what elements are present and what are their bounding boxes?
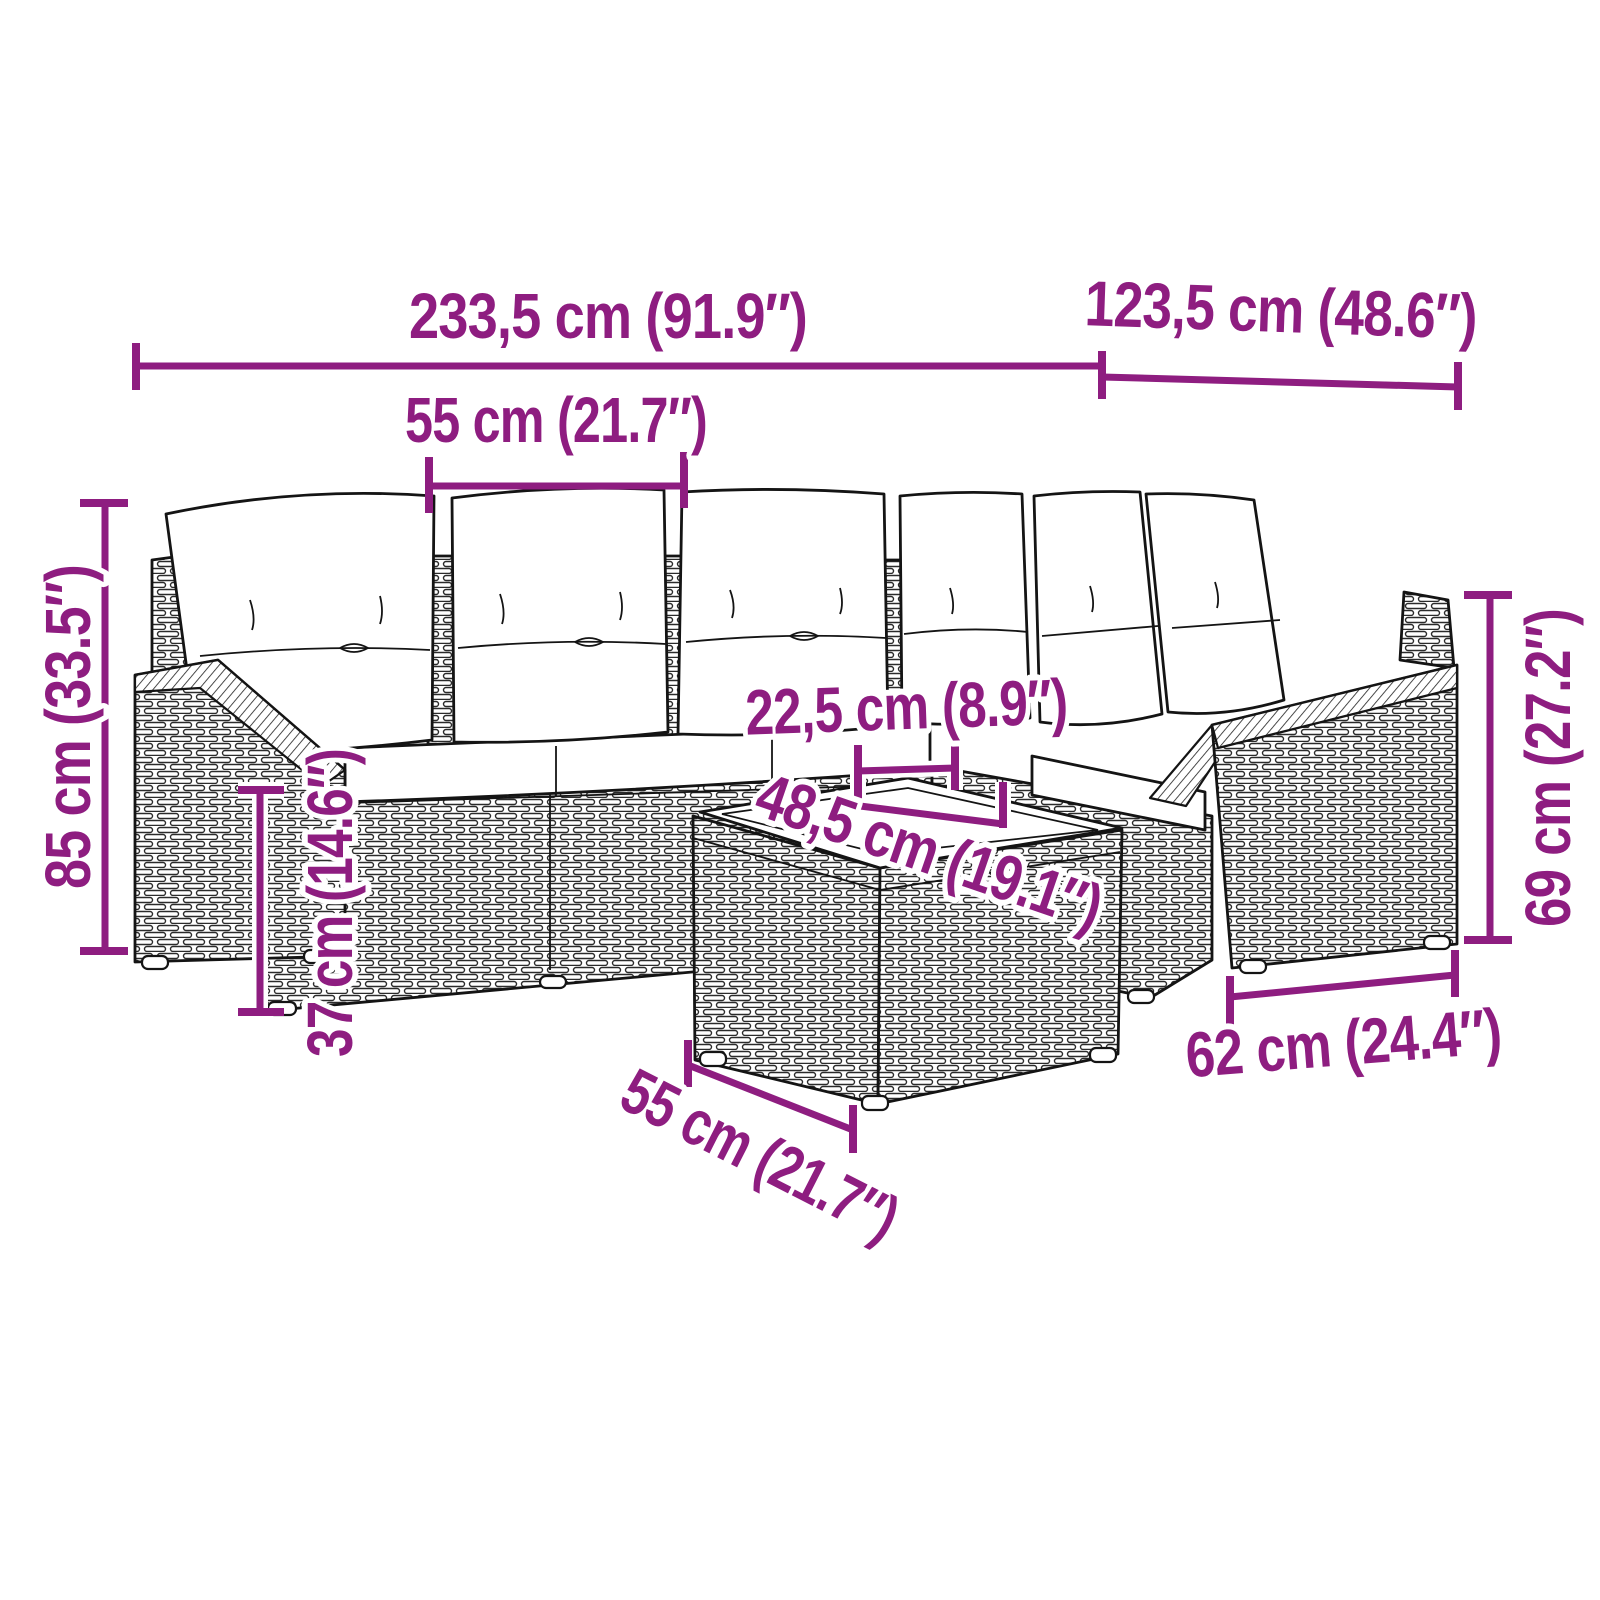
dimension-diagram: 233,5 cm (91.9″) 123,5 cm (48.6″) 55 cm … xyxy=(0,0,1600,1600)
table-foot xyxy=(862,1096,888,1110)
sofa-foot xyxy=(1424,936,1450,949)
dim-label-total-width: 233,5 cm (91.9″) xyxy=(409,280,807,352)
back-cushions-right xyxy=(1034,492,1284,725)
dim-label-table-gap: 22,5 cm (8.9″) xyxy=(744,665,1068,748)
diagram-canvas: 233,5 cm (91.9″) 123,5 cm (48.6″) 55 cm … xyxy=(0,0,1600,1600)
back-cushion xyxy=(452,488,668,742)
sofa-foot xyxy=(142,956,168,969)
dim-sofa-total-depth: 123,5 cm (48.6″) xyxy=(1084,267,1478,410)
dim-label-total-height: 85 cm (33.5″) xyxy=(32,565,104,889)
sofa-foot xyxy=(1128,990,1154,1003)
dim-label-seat-height: 37 cm (14.6″) xyxy=(294,749,366,1057)
dim-label-armrest-height: 69 cm (27.2″) xyxy=(1512,609,1584,927)
table-foot xyxy=(1090,1048,1116,1062)
table-foot xyxy=(700,1052,726,1066)
dim-label-total-depth: 123,5 cm (48.6″) xyxy=(1084,267,1478,353)
dim-sofa-total-width: 233,5 cm (91.9″) xyxy=(136,280,1102,399)
back-post xyxy=(1400,592,1454,668)
dim-armrest-height: 69 cm (27.2″) xyxy=(1464,595,1584,940)
dim-seat-height: 37 cm (14.6″) xyxy=(238,749,366,1057)
dim-label-seat-width: 55 cm (21.7″) xyxy=(405,384,707,456)
dim-sofa-total-height: 85 cm (33.5″) xyxy=(32,503,128,951)
back-cushion xyxy=(1146,494,1284,714)
sofa-foot xyxy=(540,976,566,988)
dim-armrest-module-depth: 62 cm (24.4″) xyxy=(1183,950,1504,1091)
sofa-foot xyxy=(1240,960,1266,973)
